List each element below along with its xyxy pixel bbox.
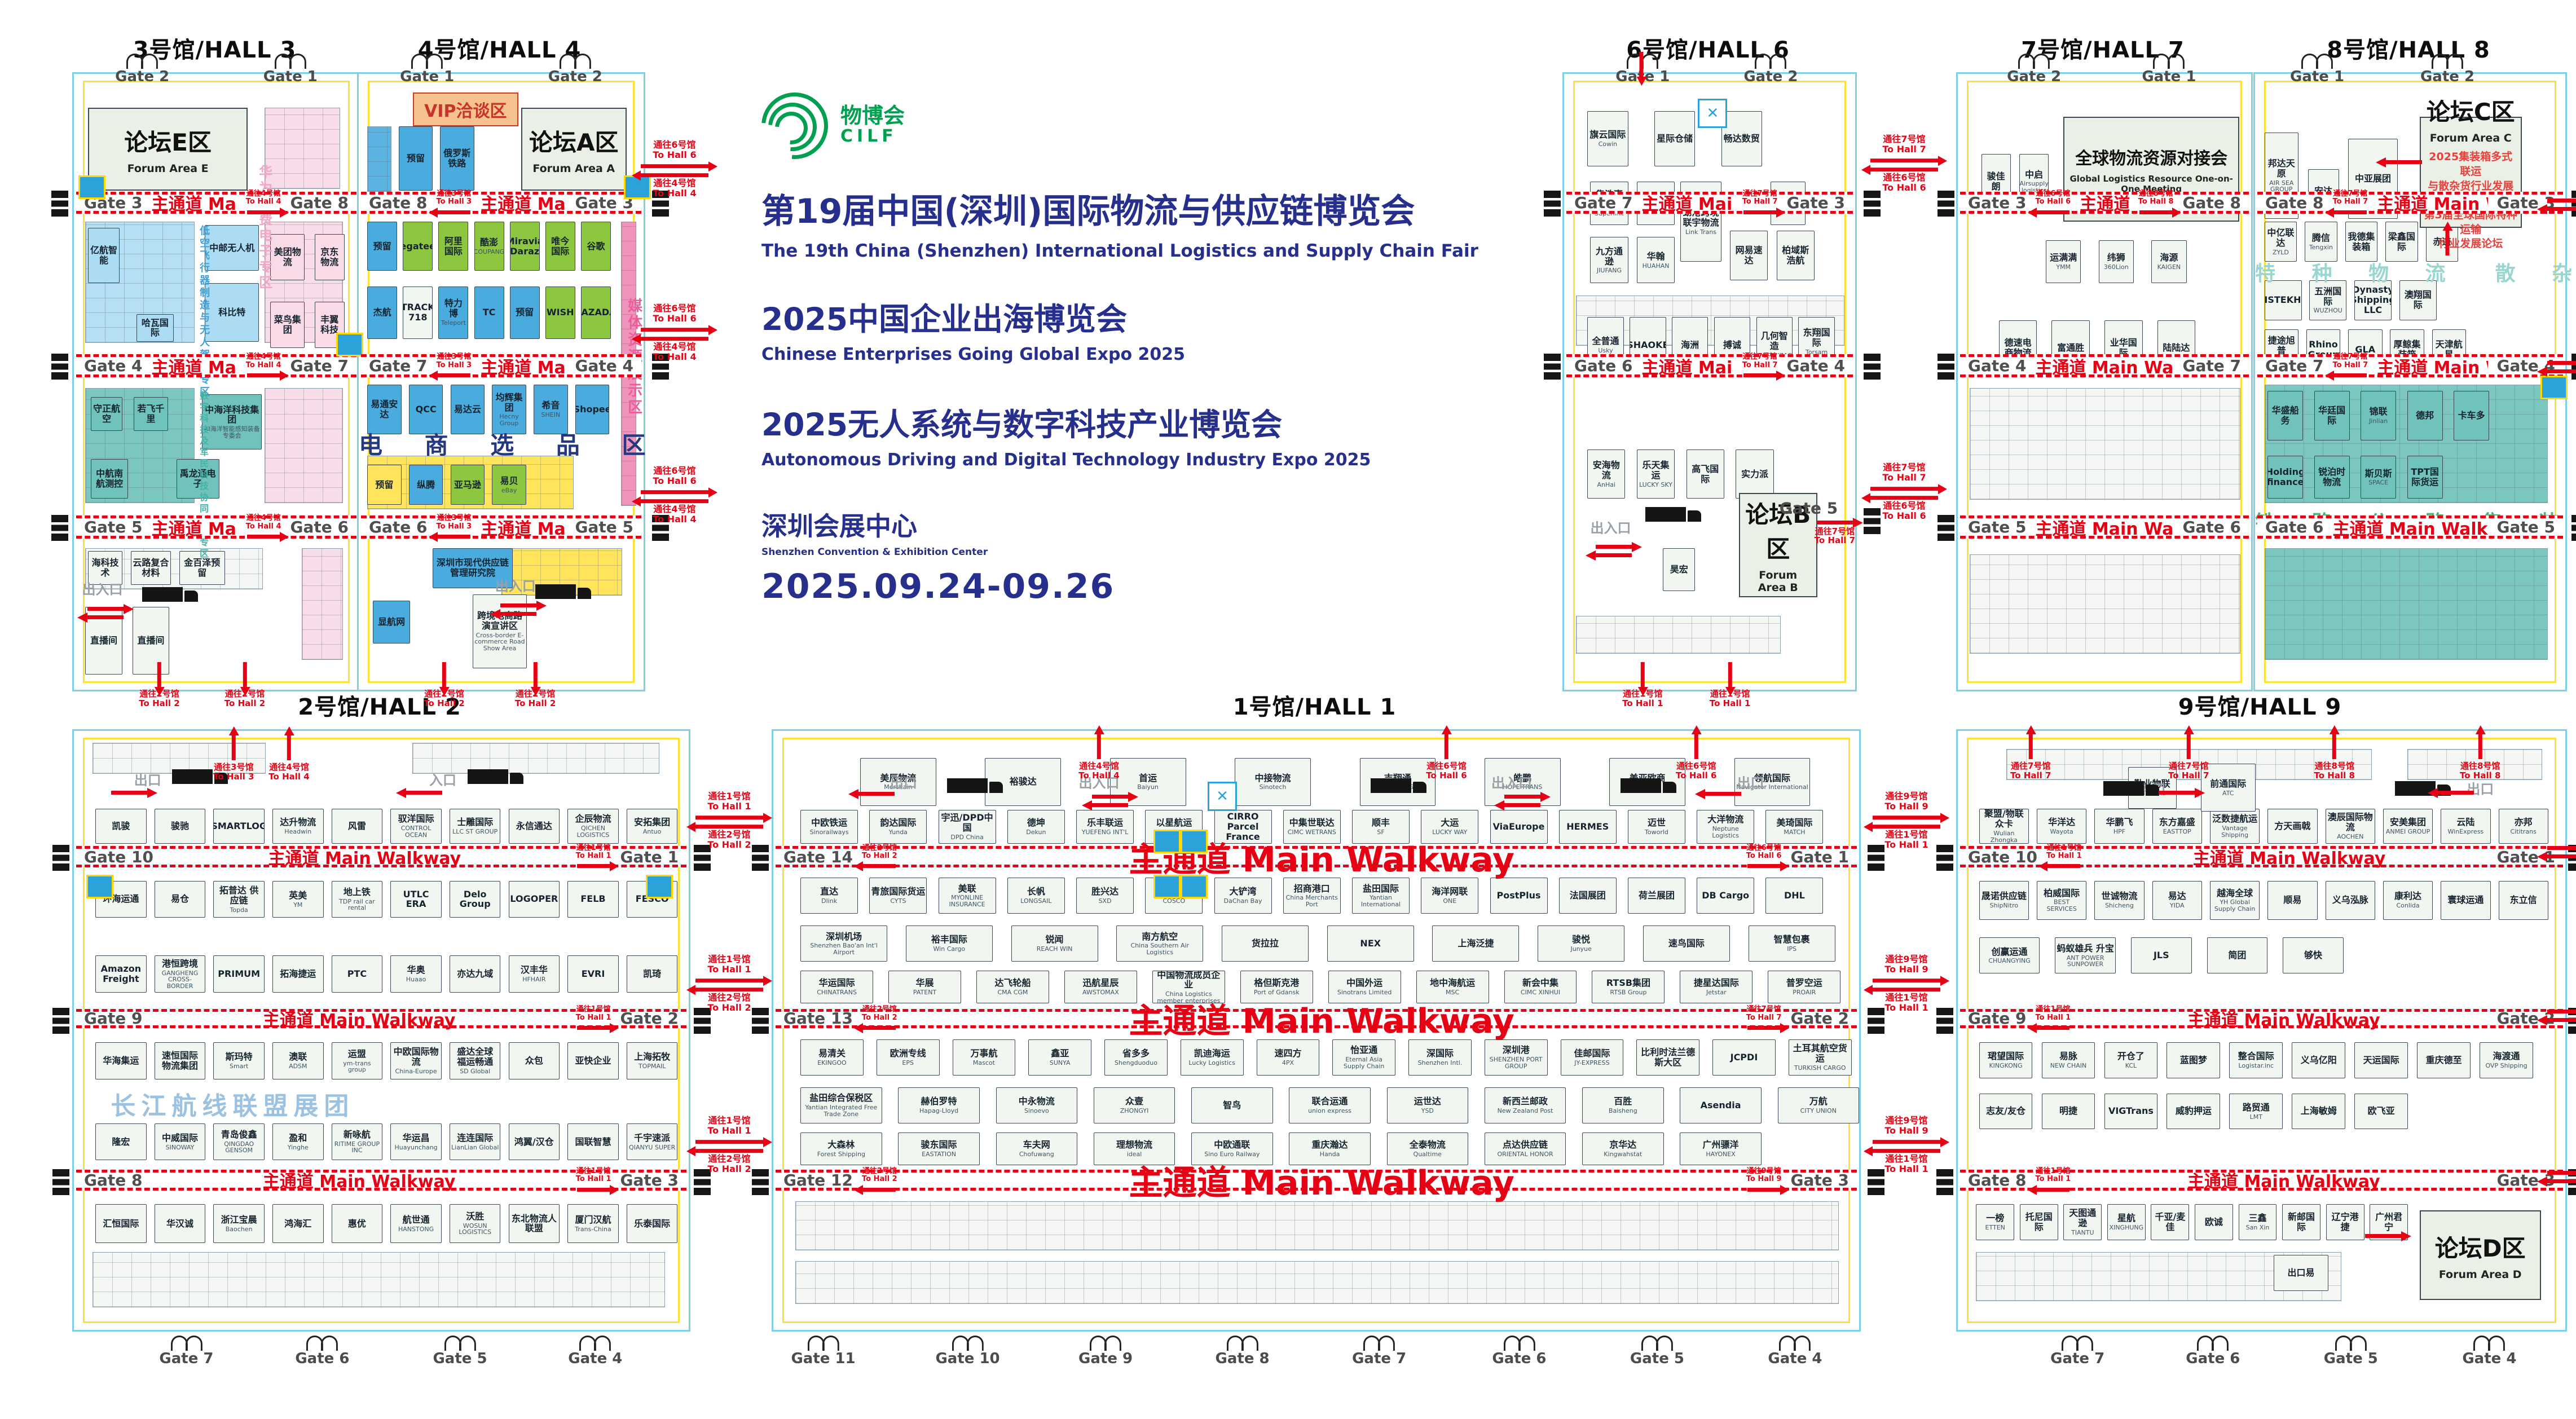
booth-name: 星际仓储 xyxy=(1657,134,1693,144)
booth-name: 拓普达 供应链 xyxy=(215,885,262,906)
booth-name: Delo Group xyxy=(451,889,499,910)
arrow-left-icon xyxy=(2547,1018,2576,1022)
passage-label: 通往7号馆 xyxy=(2333,353,2367,361)
booth-name: 柏域斯浩航 xyxy=(1778,245,1813,266)
gate-gate-4: Gate 4 xyxy=(2462,1336,2516,1367)
booth: 东方嘉盛EASTTOP xyxy=(2152,809,2202,844)
booth: 易清关EKINGOO xyxy=(800,1039,864,1076)
booth: 隆宏 xyxy=(95,1123,146,1161)
booth: 畅达数贸 xyxy=(1721,111,1762,166)
booth: 智慧包裹IPS xyxy=(1749,926,1835,962)
booth: 永信通达 xyxy=(509,809,560,844)
booth: 青岛俊鑫QINGDAO GENSOM xyxy=(213,1123,264,1161)
booth: 华翰HUAHAN xyxy=(1637,237,1675,283)
arrow-left-icon xyxy=(1870,168,1938,171)
gate-door-icon xyxy=(2431,54,2464,68)
gate-door-icon xyxy=(274,54,307,68)
booth-name: 亦邦 xyxy=(2515,817,2533,827)
booth-subname: MYONLINE INSURANCE xyxy=(940,894,994,907)
booth: 拓普达 供应链Topda xyxy=(213,881,264,918)
passage-label-en: To Hall 8 xyxy=(2314,771,2355,781)
gate-label: Gate 5 xyxy=(2324,1350,2378,1367)
booth: 盐田国际Yantian International xyxy=(1352,878,1410,914)
booth: 康利达Conlida xyxy=(2383,881,2433,920)
gate-gate-9: Gate 9 xyxy=(1078,1336,1133,1367)
arrow-left-icon xyxy=(695,1149,763,1153)
gate-gate-6: Gate 6 xyxy=(295,1336,349,1367)
booth-name: 安拓集团 xyxy=(634,817,670,827)
booth-name: 海科技术 xyxy=(90,558,121,578)
arrow-down-icon xyxy=(243,662,246,687)
side-gate-icon xyxy=(1937,515,1954,541)
direction-arrow-icon xyxy=(438,210,470,214)
booth-name: 大运 xyxy=(1441,818,1459,828)
direction-arrow-icon xyxy=(2334,373,2367,377)
booth-subname: Forest Shipping xyxy=(817,1151,865,1158)
zone-title: 论坛E区 xyxy=(124,124,212,158)
booth-name: 京东物流 xyxy=(316,247,343,267)
booth-subname: HUAHAN xyxy=(1643,263,1670,270)
booth-subname: ATC xyxy=(2222,790,2234,797)
booth: 义乌泓脉 xyxy=(2326,881,2375,920)
booth: 青旅国际货运CYTS xyxy=(869,878,927,914)
booth-name: 法国展团 xyxy=(1570,891,1606,901)
arrow-right-icon xyxy=(1817,521,1853,525)
passage-label: 通往6号馆 xyxy=(1676,761,1716,771)
gate-gate-11: Gate 11 xyxy=(791,1336,855,1367)
passage-label-en: To Hall 1 xyxy=(1884,1003,1928,1013)
booth-name: 凯琦 xyxy=(643,969,661,979)
arrow-left-icon xyxy=(1092,803,1128,807)
walkway-label: 主通道 Main Walkway xyxy=(481,354,566,378)
booth: 骏驰 xyxy=(155,809,205,844)
booth-name: 青岛俊鑫 xyxy=(221,1130,257,1140)
booth-name: 德坤 xyxy=(1027,818,1045,828)
passage-label-en: To Hall 3 xyxy=(436,362,472,369)
main-walkway: Gate 6主通道 Main WalkwayGate 5 xyxy=(2257,515,2563,539)
gate-gate-8: Gate 8 xyxy=(1216,1336,1270,1367)
booth: PostPlus xyxy=(1490,878,1548,914)
gate-label: Gate 6 xyxy=(1574,356,1632,375)
arrow-right-icon xyxy=(2547,199,2576,202)
elevator-icon: ✕ xyxy=(1698,99,1727,128)
passage-label-en: To Hall 1 xyxy=(1884,840,1928,850)
direction-arrow-icon xyxy=(863,1188,896,1192)
passage-label: 通往3号馆 xyxy=(214,763,253,772)
arrow-left-icon xyxy=(1873,825,1940,829)
booth: DHL xyxy=(1765,878,1823,914)
passage-label-en: To Hall 2 xyxy=(424,699,464,708)
booth-name: 越海全球 xyxy=(2217,888,2253,898)
booth-name: 中欧铁运 xyxy=(811,818,847,828)
booth-name: 运世达 xyxy=(1414,1096,1441,1107)
booth-field xyxy=(93,1252,666,1307)
walkway-direction-note: 通往2号馆To Hall 2 xyxy=(862,1006,897,1031)
booth: 我德集装箱 xyxy=(2345,222,2378,262)
event-dates: 2025.09.24-09.26 xyxy=(761,567,1495,606)
gate-label: Gate 3 xyxy=(1791,1171,1849,1189)
booth: 锦联Jinlian xyxy=(2361,391,2396,440)
booth-name: 华海集运 xyxy=(103,1056,139,1066)
booth-name: 达飞轮船 xyxy=(994,978,1031,988)
booth-name: 大森林 xyxy=(827,1140,855,1150)
direction-arrow xyxy=(1504,795,1540,807)
booth-name: 全泰物流 xyxy=(1410,1140,1446,1150)
booth-subname: WinExpress xyxy=(2448,829,2484,835)
booth: 斯贝斯SPACE xyxy=(2361,456,2396,499)
booth-name: 出口易 xyxy=(2287,1268,2314,1278)
booth: 亚快企业 xyxy=(567,1042,618,1079)
booth-name: 百胜 xyxy=(1614,1096,1632,1107)
zone-title: 论坛D区 xyxy=(2435,1229,2526,1264)
booth: LOGOPER xyxy=(509,881,560,918)
booth: 澳联ADSM xyxy=(272,1042,323,1079)
direction-arrow xyxy=(1705,792,1741,796)
booth: 骏悦Junyue xyxy=(1538,926,1624,962)
gate-door-icon xyxy=(444,1336,477,1350)
booth: 鸿翼/汉仓 xyxy=(509,1123,560,1161)
booth-name: 珺望国际 xyxy=(1988,1051,2024,1061)
direction-arrow-icon xyxy=(1747,864,1780,868)
passage-label: 通往7号馆 xyxy=(1743,353,1777,361)
arrow-down-icon xyxy=(157,662,161,687)
gate-door-icon xyxy=(2152,54,2185,68)
zone-band-label: 特 种 物 流 散 杂 货 展 区 xyxy=(2255,257,2565,287)
gate-label: Gate 5 xyxy=(575,518,633,536)
booth-subname: ShipNitro xyxy=(1990,902,2019,909)
passage-label-en: To Hall 1 xyxy=(1710,699,1750,708)
elevator-icon: ✕ xyxy=(1208,782,1237,811)
passage-label-en: To Hall 4 xyxy=(653,352,696,362)
booth-name: 风雷 xyxy=(348,821,366,831)
event-title-en: The 19th China (Shenzhen) International … xyxy=(761,241,1495,261)
booth-subname: Tengxin xyxy=(2309,244,2333,251)
gate-door-icon xyxy=(2018,54,2050,68)
arrow-left-icon xyxy=(2547,1179,2576,1183)
arrow-left-icon xyxy=(2547,369,2576,373)
passage-label-en: To Hall 6 xyxy=(1746,852,1782,860)
booth-name: 澳翔国际 xyxy=(2401,290,2435,310)
direction-arrow xyxy=(1092,795,1128,807)
booth-subname: union express xyxy=(1308,1108,1351,1114)
booth: 预留 xyxy=(399,126,433,191)
booth-name: 云路复合材料 xyxy=(133,558,169,578)
booth-name: 科比特 xyxy=(218,307,245,318)
arrow-left-icon xyxy=(695,825,763,829)
zone-vertical-label: 低空飞行器制造与无人驾驶专区 xyxy=(196,225,211,342)
booth: 开仓了KCL xyxy=(2104,1042,2158,1078)
passage-label-en: To Hall 2 xyxy=(224,699,265,708)
zone-band-label: 电 商 选 品 区 xyxy=(359,426,644,461)
booth: NEX xyxy=(1327,926,1414,962)
passage-label: 通往9号馆 xyxy=(1885,1116,1927,1126)
booth-name: 义乌泓脉 xyxy=(2332,895,2368,905)
arrow-left-icon xyxy=(2547,207,2576,211)
walkway-direction-note: 通往7号馆To Hall 7 xyxy=(1742,353,1778,378)
booth-name: 顺易 xyxy=(2283,895,2301,905)
passage-label-en: To Hall 2 xyxy=(707,840,751,850)
gate-label: Gate 7 xyxy=(1574,193,1632,212)
booth: 九方通逊JIUFANG xyxy=(1590,237,1628,283)
booth: 货拉拉 xyxy=(1222,926,1309,962)
booth: 土耳其航空货运TURKISH CARGO xyxy=(1789,1039,1852,1076)
passage-label: 通往7号馆 xyxy=(2169,761,2208,771)
booth-name: 赫伯罗特 xyxy=(921,1096,957,1107)
booth-name: 中欧通联 xyxy=(1214,1140,1250,1150)
booth-name: 长帆 xyxy=(1027,887,1045,897)
booth-subname: New Zealand Post xyxy=(1498,1108,1553,1114)
direction-arrow-icon xyxy=(577,864,610,868)
booth-subname: YM xyxy=(293,902,302,909)
booth: 整合国际Logistar.inc xyxy=(2229,1042,2283,1078)
booth-name: Holding finance xyxy=(2267,467,2303,487)
booth-name: 中亿联达 xyxy=(2266,228,2296,248)
gate-label: Gate 4 xyxy=(1768,1350,1822,1367)
passage-label-en: To Hall 9 xyxy=(1884,1126,1928,1136)
booth-name: 邦达天原 xyxy=(2266,158,2297,179)
side-gate-icon xyxy=(1864,191,1881,217)
walkway-label: 主通道 Main Walkway xyxy=(151,354,236,378)
booth: 万事航Mascot xyxy=(953,1039,1016,1076)
passage-label-en: To Hall 7 xyxy=(2332,198,2368,206)
booth-subname: SXD xyxy=(1099,898,1112,905)
booth-field xyxy=(795,1201,1839,1250)
booth-name: Amazon Freight xyxy=(97,964,144,984)
gate-label: Gate 2 xyxy=(2007,68,2061,85)
arrow-right-icon xyxy=(1873,1140,1940,1144)
booth: 汇恒国际 xyxy=(95,1204,146,1243)
direction-arrow-icon xyxy=(863,864,896,868)
booth-name: 易脉 xyxy=(2059,1051,2077,1061)
booth-name: 明捷 xyxy=(2059,1106,2077,1116)
booth-subname: Eternal Asia Supply Chain xyxy=(1334,1056,1394,1069)
booth: 安海物流AnHai xyxy=(1587,450,1625,499)
gate-gate-1: Gate 1 xyxy=(2142,54,2196,85)
booth: 亦达九域 xyxy=(450,955,500,993)
booth-name: 上海拓牧 xyxy=(634,1052,670,1062)
arrow-left-icon xyxy=(641,173,708,177)
booth: 海洋网联ONE xyxy=(1421,878,1478,914)
passage-label: 通往1号馆 xyxy=(576,1167,611,1175)
booth: 创赢运通CHUANGYING xyxy=(1979,937,2040,973)
arrow-right-icon xyxy=(695,1140,763,1144)
booth: 易达YIDA xyxy=(2152,881,2202,920)
booth-subname: COSCO xyxy=(1162,898,1185,905)
arrow-right-icon xyxy=(1873,979,1940,982)
booth: 千宇速派QIANYU SUPER xyxy=(627,1123,677,1161)
gate-label: Gate 2 xyxy=(2420,68,2474,85)
walkway-direction-note: 通往3号馆To Hall 3 xyxy=(436,353,472,378)
passage-label-en: To Hall 4 xyxy=(246,362,281,369)
booth-subname: Cross-border E-commerce Road Show Area xyxy=(474,632,525,652)
gate-door-icon xyxy=(2335,1336,2367,1350)
booth: 港恒跨境GANGHENG CROSS-BORDER xyxy=(155,955,205,993)
booth-name: 俄罗斯铁路 xyxy=(442,148,473,169)
booth-name: 韵达国际 xyxy=(880,818,916,828)
passage-label: 通往3号馆 xyxy=(437,514,471,522)
booth-name: 士雕国际 xyxy=(457,817,493,827)
arrow-right-icon xyxy=(641,164,708,168)
gate-gate-5: Gate 5 xyxy=(433,1336,487,1367)
gate-gate-5: Gate 5 xyxy=(2324,1336,2378,1367)
booth: 赫伯罗特Hapag-Lloyd xyxy=(898,1087,979,1123)
direction-arrow xyxy=(2547,1171,2576,1183)
passage-label: 通往2号馆 xyxy=(862,1006,897,1013)
booth: 速恒国际 物流集团 xyxy=(155,1042,205,1079)
booth-name: HERMES xyxy=(1566,822,1609,832)
booth-subname: LMT xyxy=(2250,1114,2262,1121)
passage-label: 通往6号馆 xyxy=(2036,190,2070,198)
side-gate-icon xyxy=(52,845,69,871)
booth-name: 华洋达 xyxy=(2048,817,2075,827)
hall-title-hall-9: 9号馆/HALL 9 xyxy=(1956,689,2564,721)
booth-name: 乐丰联运 xyxy=(1087,818,1123,828)
passage-label-en: To Hall 1 xyxy=(2035,1014,2071,1022)
booth-name: 锦联 xyxy=(2370,407,2388,417)
booth-name: 凯骏 xyxy=(112,821,130,831)
zone-title: 论坛A区 xyxy=(529,124,619,158)
booth-name: 怡亚通 xyxy=(1350,1045,1377,1055)
booth-name: 鸿翼/汉仓 xyxy=(514,1137,554,1147)
passage-label-en: To Hall 1 xyxy=(576,1175,611,1183)
booth: 安美集团ANMEI GROUP xyxy=(2383,809,2433,844)
gate-door-icon xyxy=(126,54,158,68)
arrow-up-icon xyxy=(1694,734,1698,759)
gate-label: Gate 3 xyxy=(1968,193,2026,212)
walkway-label: 主通道 Main Walkway xyxy=(906,832,1737,882)
gate-label: Gate 10 xyxy=(1968,848,2037,866)
booth-name: UTLC ERA xyxy=(392,889,439,910)
booth-name: 以星航运 xyxy=(1156,818,1192,828)
booth: UTLC ERA xyxy=(390,881,441,918)
booth: 乐天集运LUCKY SKY xyxy=(1637,450,1675,499)
blue-box xyxy=(86,875,113,898)
booth-name: 大洋物流 xyxy=(1707,814,1743,825)
gate-label: Gate 12 xyxy=(783,1171,853,1189)
main-walkway: Gate 6通往3号馆To Hall 3主通道 Main WalkwayGate… xyxy=(361,515,641,539)
gate-label: Gate 5 xyxy=(2497,518,2555,536)
gate-label: Gate 2 xyxy=(620,1009,679,1028)
passage-label: 通往8号馆 xyxy=(2315,761,2354,771)
passage-label: 通往1号馆 xyxy=(576,1006,611,1013)
hall-passage-note: 通往1号馆To Hall 1通往2号馆To Hall 2 xyxy=(695,954,763,1013)
access-label: 出入口 xyxy=(1491,772,1532,792)
passage-label: 通往9号馆 xyxy=(1885,791,1927,801)
direction-arrow-icon xyxy=(438,373,470,377)
booth-name: 迈世 xyxy=(1648,818,1666,828)
booth-name: 易仓 xyxy=(171,894,189,904)
booth: 乐泰国际 xyxy=(627,1204,677,1243)
direction-arrow-icon xyxy=(2139,210,2172,214)
booth-subname: REACH WIN xyxy=(1037,946,1073,953)
gate-label: Gate 5 xyxy=(84,518,142,536)
booth: 泛数捷航运Vantage Shipping xyxy=(2210,809,2260,844)
booth-name: 上海泛捷 xyxy=(1457,938,1494,949)
arrow-left-icon xyxy=(641,337,708,341)
booth-name: WISH xyxy=(547,307,574,318)
arrow-up-icon xyxy=(2332,734,2336,759)
booth: DB Cargo xyxy=(1697,878,1754,914)
booth-name: 托尼国际 xyxy=(2022,1212,2057,1232)
booth-subname: Huaao xyxy=(406,976,426,983)
gate-gate-6: Gate 6 xyxy=(1492,1336,1546,1367)
passage-label-en: To Hall 7 xyxy=(2168,771,2209,781)
booth-name: 澳辰国际物流 xyxy=(2327,812,2374,832)
booth-name: 格但斯克港 xyxy=(1254,978,1299,988)
booth: PTC xyxy=(332,955,382,993)
booth-name: 联合运通 xyxy=(1312,1096,1348,1107)
main-walkway: Gate 5主通道 Main WalkwayGate 6 xyxy=(1960,515,2249,539)
booth-subname: Wulian Zhongka xyxy=(1981,830,2027,843)
arrow-right-icon xyxy=(2365,1234,2401,1238)
booth-name: 均辉集团 xyxy=(494,393,525,413)
booth: egatee xyxy=(403,222,433,271)
booth-name: LOGOPER xyxy=(510,894,558,904)
booth: 柏域斯浩航 xyxy=(1777,231,1815,280)
booth-name: 特力博 xyxy=(440,298,466,319)
booth-subname: ONE xyxy=(1443,898,1456,905)
booth-name: 惠优 xyxy=(348,1219,366,1229)
passage-label-en: To Hall 3 xyxy=(436,198,472,206)
booth: 凯迪海运Lucky Logistics xyxy=(1181,1039,1244,1076)
booth-name: 捷途旭普 xyxy=(2266,336,2297,356)
booth-subname: CHUANGYING xyxy=(1988,958,2030,964)
booth-name: QCC xyxy=(416,404,437,415)
blue-box xyxy=(646,875,673,898)
booth-name: 若飞千里 xyxy=(135,404,166,424)
walkway-label: 主通道 Main Walkway xyxy=(481,190,566,215)
booth: 盐田综合保税区Yantian Integrated Free Trade Zon… xyxy=(800,1087,882,1123)
gate-label: Gate 11 xyxy=(791,1350,855,1367)
booth: 华洋达Wayota xyxy=(2037,809,2086,844)
booth-subname: Shicheng xyxy=(2105,902,2134,909)
booth-subname: LONGSAIL xyxy=(1020,898,1051,905)
arrow-right-icon xyxy=(2547,1171,2576,1175)
direction-arrow: 通往8号馆To Hall 8 xyxy=(2460,734,2500,781)
passage-label-en: To Hall 6 xyxy=(1882,183,1926,193)
booth-name: Asendia xyxy=(1701,1100,1741,1110)
booth-name: 顺丰 xyxy=(1372,818,1390,828)
gate-label: Gate 6 xyxy=(1492,1350,1546,1367)
booth: 直达Dlink xyxy=(800,878,858,914)
passage-label-en: To Hall 4 xyxy=(268,772,309,782)
main-walkway: Gate 4主通道 Main WalkwayGate 7 xyxy=(1960,354,2249,377)
gate-label: Gate 5 xyxy=(1780,499,1838,517)
gate-label: Gate 8 xyxy=(369,193,427,212)
side-gate-icon xyxy=(51,515,68,541)
booth-name: 易清关 xyxy=(818,1048,846,1059)
arrow-right-icon xyxy=(641,328,708,332)
booth-name: 富通胜 xyxy=(2057,343,2084,353)
booth-subname: Logistar.inc xyxy=(2239,1063,2274,1069)
booth-name: 创赢运通 xyxy=(1992,947,2028,957)
booth: 辽宁港捷 xyxy=(2326,1204,2364,1240)
booth-subname: SUNYA xyxy=(1050,1060,1071,1067)
truck-icon xyxy=(1371,776,1433,797)
booth-name: 柏威国际 xyxy=(2044,888,2080,898)
side-gate-icon xyxy=(1937,191,1954,217)
booth: 简团 xyxy=(2207,937,2268,973)
booth-subname: TDP rail car rental xyxy=(333,898,381,911)
booth-name: 重庆德至 xyxy=(2426,1055,2462,1065)
booth-name: 开仓了 xyxy=(2117,1051,2145,1061)
expo-floorplan-poster: 物博会 CILF 第19届中国(深圳)国际物流与供应链博览会 The 19th … xyxy=(0,0,2576,1419)
booth-name: 浙江宝晨 xyxy=(221,1215,257,1225)
booth-subname: Junyue xyxy=(1570,946,1591,953)
direction-arrow: 通往7号馆To Hall 7 xyxy=(1815,521,1855,546)
booth: 惠优 xyxy=(332,1204,382,1243)
walkway-direction-note: 通往4号馆To Hall 4 xyxy=(246,353,281,378)
